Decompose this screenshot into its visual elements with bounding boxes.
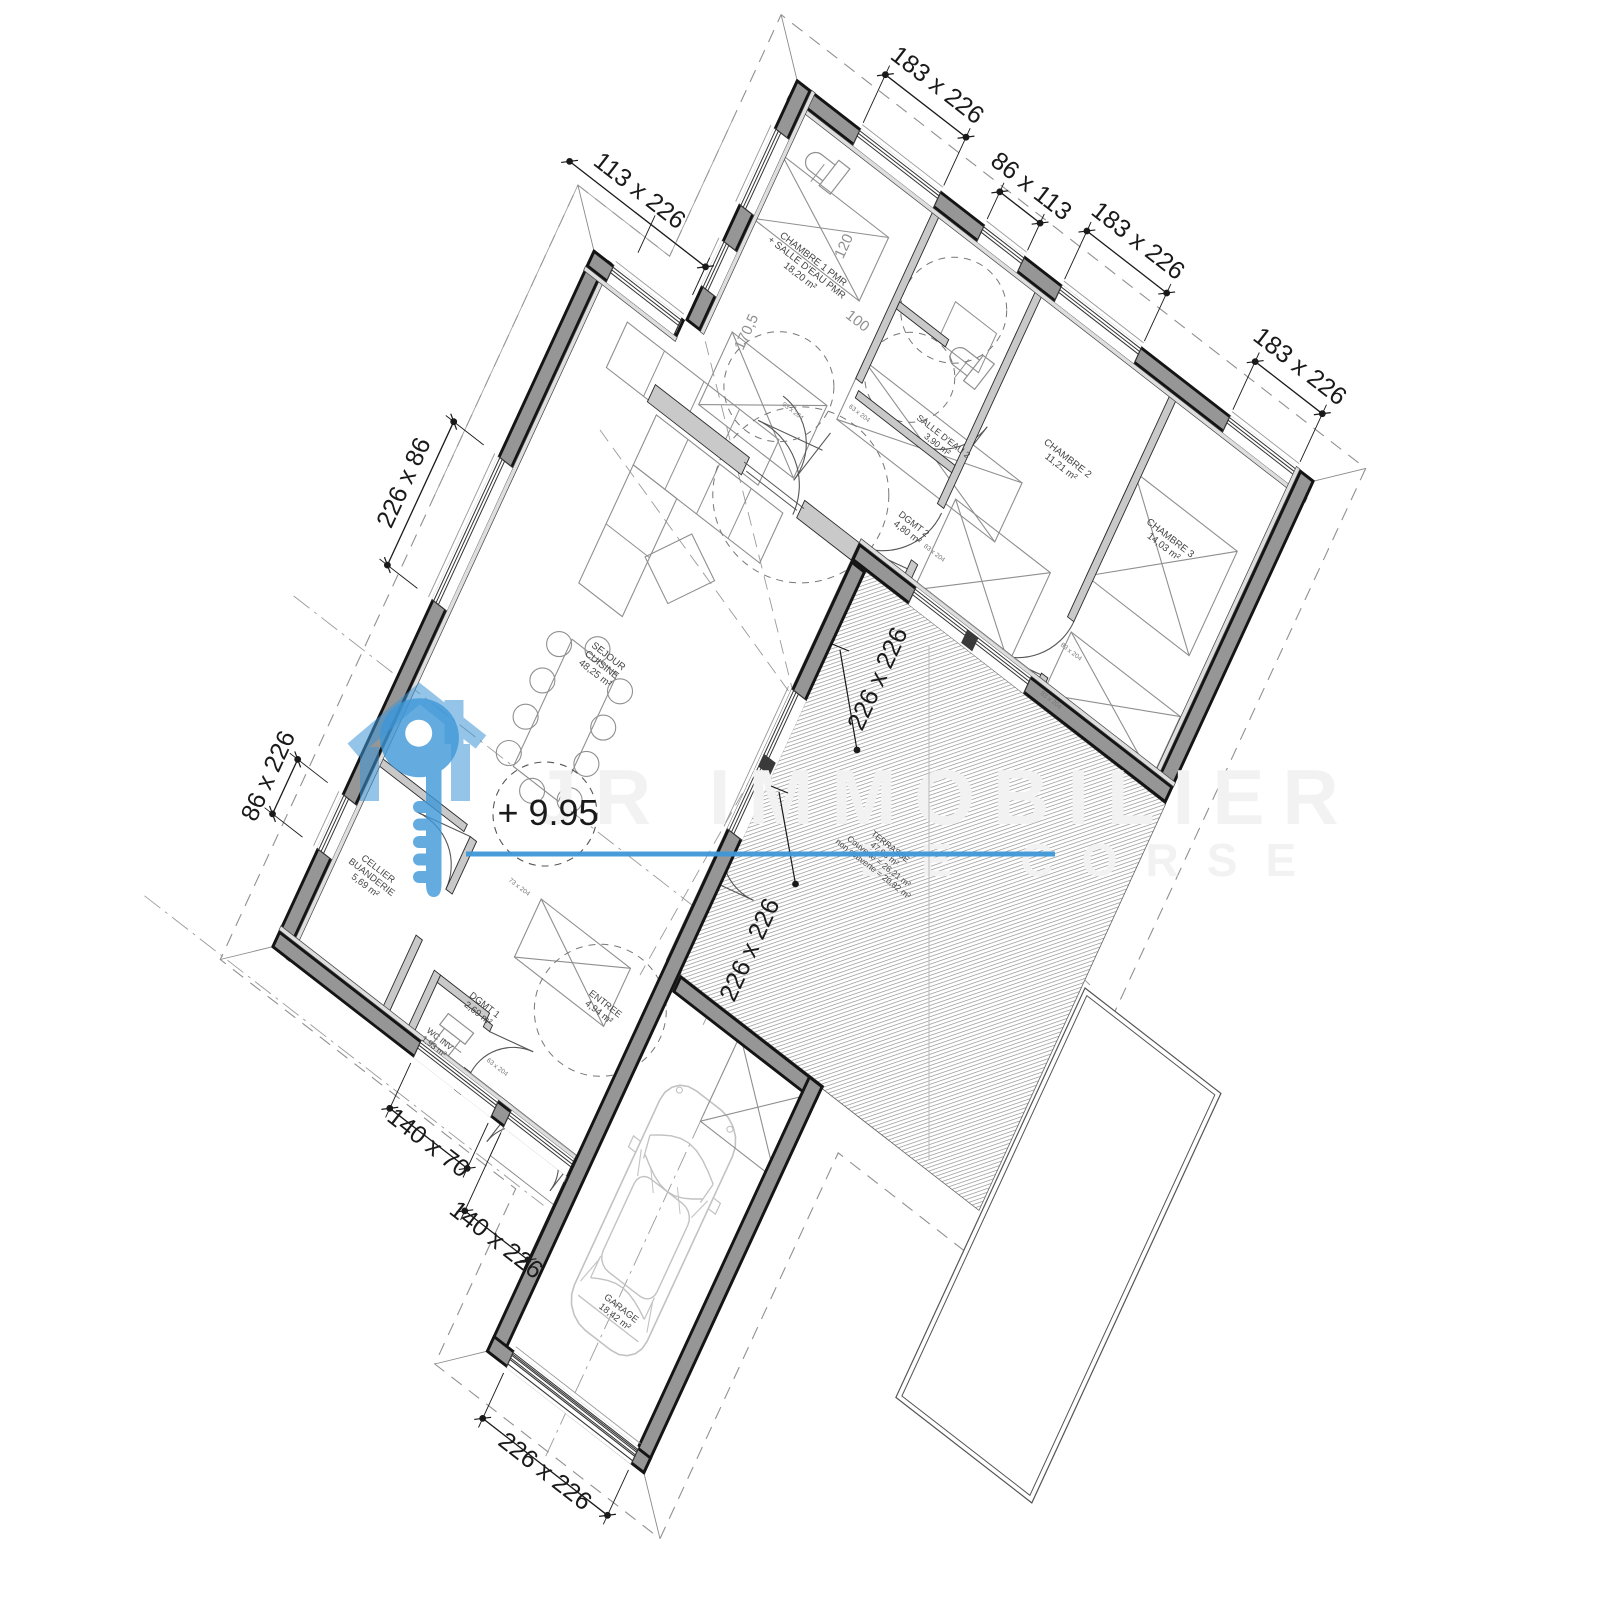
svg-text:JR IMMOBILIER: JR IMMOBILIER xyxy=(533,753,1356,841)
svg-text:+ 9.95: + 9.95 xyxy=(497,792,598,833)
svg-text:DE CORSE: DE CORSE xyxy=(860,834,1324,886)
